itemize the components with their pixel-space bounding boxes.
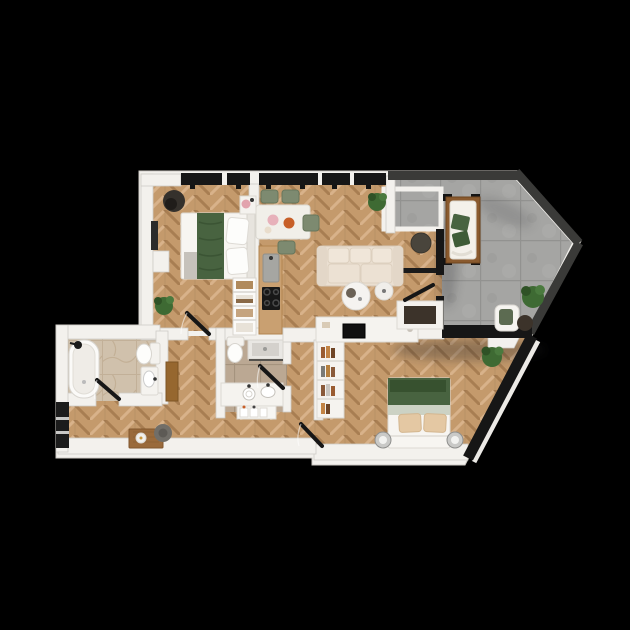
book [321, 347, 325, 358]
book [321, 385, 325, 396]
plant-foliage [379, 193, 387, 201]
window-post [222, 173, 227, 185]
sofa-cushion [350, 248, 371, 263]
bench-vase-flower [140, 437, 143, 440]
wardrobe-clothes [236, 309, 253, 317]
wall-top-pier-left [141, 174, 181, 186]
sofa-seat-cushions [328, 264, 392, 283]
coffee-machine [242, 200, 251, 209]
dark-pouf-top [165, 198, 177, 210]
balcony-door-left [56, 402, 69, 448]
sofa-arm-right [393, 246, 403, 286]
coffee-table-tray [346, 288, 356, 298]
bed2-pillow [424, 413, 447, 432]
terrace-side-table [517, 315, 533, 331]
window-tick [266, 185, 271, 189]
bed2-blanket-fold [390, 380, 446, 392]
storage-bench-top [404, 306, 436, 324]
bathtub-basin [73, 344, 95, 394]
sofa-arm-left [317, 246, 327, 286]
basin-faucet [247, 384, 251, 388]
toilet [228, 344, 243, 363]
balcony-door-glazing-bar [56, 431, 69, 434]
book [331, 386, 335, 396]
dining-chair [278, 241, 295, 254]
bedside-table-top [451, 436, 459, 444]
toilet [137, 344, 152, 364]
basin-faucet [266, 383, 270, 387]
round-pouf-top [159, 429, 168, 438]
wall-bathroom2-right-b [283, 386, 291, 412]
coffee-cup [250, 198, 254, 202]
wall-bedroom1-pillar [153, 251, 169, 272]
wardrobe-clothes [236, 323, 253, 332]
plant-foliage [521, 286, 531, 296]
coffee-table-item [358, 297, 362, 301]
wall-hallway-bottom [58, 438, 316, 454]
window-tick [190, 185, 195, 189]
toiletry-box [240, 408, 248, 417]
bed1-pillow [226, 247, 249, 275]
plant-foliage [482, 347, 491, 356]
balcony-door-glazing-bar [56, 417, 69, 420]
sofa-cushion [372, 248, 392, 263]
book [326, 384, 330, 396]
console-deco [322, 322, 330, 328]
window-tick [366, 185, 371, 189]
plant-foliage [154, 297, 162, 305]
washbasin [261, 387, 275, 398]
sofa-back-cushions [328, 248, 392, 263]
dining-table [256, 205, 310, 239]
toiletry-box [250, 408, 258, 417]
wardrobe-clothes [236, 299, 253, 303]
floorplan-stage [0, 0, 630, 630]
coffee-table-large [342, 282, 370, 310]
book [326, 404, 330, 414]
radiator [151, 221, 158, 250]
dining-chair [303, 215, 319, 231]
bathtub-drain [82, 380, 86, 384]
basin-faucet [153, 377, 157, 381]
plant-foliage [535, 285, 545, 295]
book [326, 365, 330, 377]
book [321, 403, 325, 414]
terrace-glass-door-frame-upper [436, 229, 444, 275]
bedside-table-top [379, 436, 387, 444]
toiletry-bottle [243, 406, 246, 409]
daybed [443, 194, 480, 265]
sofa-cushion [328, 248, 349, 263]
window-tick [236, 185, 241, 189]
window-kitchen-living [259, 173, 386, 185]
floorplan-svg [0, 0, 630, 630]
plate-orange [284, 218, 295, 229]
wardrobe-clothes [236, 281, 253, 289]
shower-drain [263, 347, 267, 351]
washbasin [144, 371, 155, 387]
plant-foliage [166, 296, 174, 304]
dark-side-table [411, 233, 431, 253]
lounge-chair-cushion [499, 309, 513, 325]
dining-chair [261, 190, 278, 203]
window-mullion [318, 173, 322, 185]
tv [343, 324, 365, 338]
toiletry-bottle [253, 406, 256, 409]
washbasin [243, 388, 255, 400]
coffee-table-item [382, 289, 386, 293]
bed2-pillow [399, 413, 422, 432]
plate-pink [268, 215, 279, 226]
plant-foliage [495, 347, 504, 356]
sink-faucet [269, 256, 273, 260]
wall-bathroom1-top [56, 325, 160, 339]
plant-foliage [368, 193, 376, 201]
window-tick [300, 185, 305, 189]
sofa-cushion [328, 264, 360, 283]
bed1-pillow [226, 217, 250, 245]
wooden-cabinet [166, 362, 178, 401]
bowl [265, 227, 272, 234]
terrace-door-track [402, 268, 436, 273]
window-bedroom1 [181, 173, 250, 185]
book [331, 348, 335, 358]
book [331, 367, 335, 377]
book [326, 346, 330, 358]
book [321, 366, 325, 377]
window-tick [332, 185, 337, 189]
sofa-cushion [361, 264, 392, 283]
window-mullion [350, 173, 354, 185]
dining-chair [282, 190, 299, 203]
terrace-parapet-top [388, 171, 518, 180]
wall-bedroom1-left [141, 174, 153, 332]
wall-terrace-pier [386, 176, 395, 233]
toiletry-box [260, 408, 267, 417]
